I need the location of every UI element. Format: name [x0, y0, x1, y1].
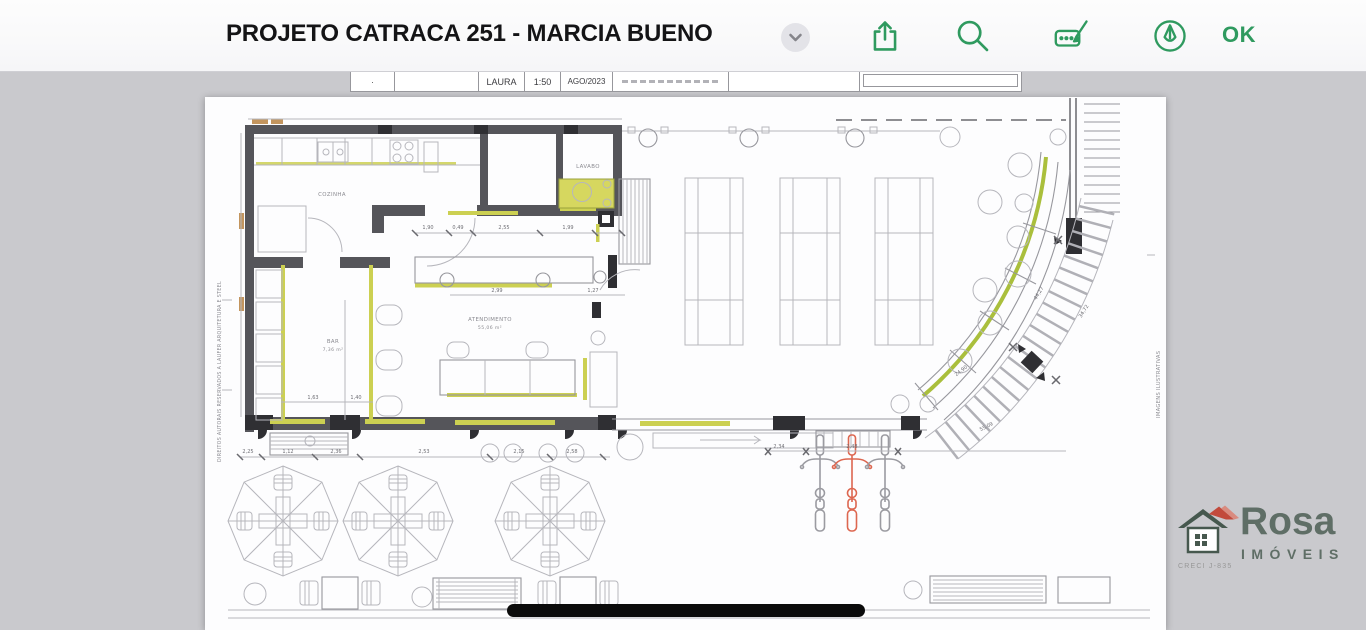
- svg-text:1,63: 1,63: [307, 395, 318, 401]
- title-block-cell: ·: [351, 72, 395, 91]
- outdoor-furniture: [228, 466, 1150, 618]
- svg-text:55,06 m²: 55,06 m²: [478, 325, 502, 331]
- house-logo-icon: [1176, 504, 1240, 558]
- svg-text:1,27: 1,27: [587, 288, 598, 294]
- svg-text:1,40: 1,40: [350, 395, 361, 401]
- home-indicator[interactable]: [507, 604, 865, 617]
- quicklook-preview-window: PROJETO CATRACA 251 - MARCIA BUENO: [0, 0, 1366, 630]
- share-button[interactable]: [866, 17, 904, 55]
- svg-text:2,36: 2,36: [330, 449, 341, 455]
- svg-text:7,36 m²: 7,36 m²: [323, 347, 344, 353]
- title-block-cell: [395, 72, 479, 91]
- svg-text:ATENDIMENTO: ATENDIMENTO: [468, 317, 512, 323]
- svg-text:DIREITOS AUTORAIS RESERVADOS A: DIREITOS AUTORAIS RESERVADOS A LAUFER AR…: [217, 281, 223, 462]
- svg-text:BAR: BAR: [327, 339, 339, 345]
- watermark-creci: CRECI J-835: [1178, 563, 1232, 570]
- outdoor-hall: [270, 120, 1066, 462]
- svg-text:44,27: 44,27: [1033, 286, 1046, 301]
- svg-text:1,12: 1,12: [282, 449, 293, 455]
- svg-text:2,48: 2,48: [846, 444, 857, 450]
- dimension-annotations: 1,90 0,49 2,55 1,99 2,99 1,27 1,63 1,40 …: [237, 119, 1090, 460]
- title-dropdown-button[interactable]: [781, 23, 810, 52]
- bar-room-fixtures: [256, 270, 402, 420]
- title-block-cell: [613, 72, 729, 91]
- ok-button[interactable]: OK: [1222, 22, 1256, 48]
- toolbar: PROJETO CATRACA 251 - MARCIA BUENO: [0, 0, 1366, 72]
- svg-text:2,55: 2,55: [498, 225, 509, 231]
- watermark-brand: Rosa: [1240, 500, 1335, 544]
- title-block-date: AGO/2023: [561, 72, 613, 91]
- chevron-down-icon: [781, 23, 810, 52]
- search-icon: [959, 22, 987, 50]
- document-title: PROJETO CATRACA 251 - MARCIA BUENO: [226, 20, 713, 48]
- pen-tool-button[interactable]: [1151, 17, 1189, 55]
- svg-text:1,90: 1,90: [422, 225, 433, 231]
- floor-plan-drawing[interactable]: 1,90 0,49 2,55 1,99 2,99 1,27 1,63 1,40 …: [0, 0, 1366, 630]
- markup-box-icon: [1056, 21, 1087, 45]
- svg-text:2,34: 2,34: [773, 444, 784, 450]
- bike-parking: [765, 431, 1066, 531]
- pen-circle-icon: [1155, 21, 1184, 50]
- document-title-block[interactable]: · LAURA 1:50 AGO/2023: [350, 71, 1022, 92]
- curved-bar-and-street: [891, 98, 1120, 459]
- markup-button[interactable]: [1053, 17, 1091, 55]
- svg-text:2,25: 2,25: [242, 449, 253, 455]
- svg-text:LAVABO: LAVABO: [576, 164, 600, 170]
- svg-text:2,99: 2,99: [491, 288, 502, 294]
- highlighted-elements: [256, 162, 730, 426]
- title-block-scale: 1:50: [525, 72, 561, 91]
- realtor-watermark: Rosa IMÓVEIS CRECI J-835: [1176, 504, 1356, 584]
- title-block-author: LAURA: [479, 72, 525, 91]
- search-button[interactable]: [954, 17, 992, 55]
- title-block-cell: [859, 72, 1021, 91]
- watermark-subtitle: IMÓVEIS: [1241, 546, 1345, 562]
- bike-gray: [866, 435, 905, 531]
- svg-text:2,53: 2,53: [418, 449, 429, 455]
- svg-text:2,58: 2,58: [566, 449, 577, 455]
- svg-text:0,49: 0,49: [452, 225, 463, 231]
- svg-text:2,15: 2,15: [513, 449, 524, 455]
- svg-text:IMAGENS ILUSTRATIVAS: IMAGENS ILUSTRATIVAS: [1156, 351, 1162, 418]
- svg-text:1,99: 1,99: [562, 225, 573, 231]
- share-icon: [875, 23, 895, 50]
- svg-text:COZINHA: COZINHA: [318, 192, 346, 198]
- title-block-cell: [729, 72, 859, 91]
- bike-gray: [801, 435, 840, 531]
